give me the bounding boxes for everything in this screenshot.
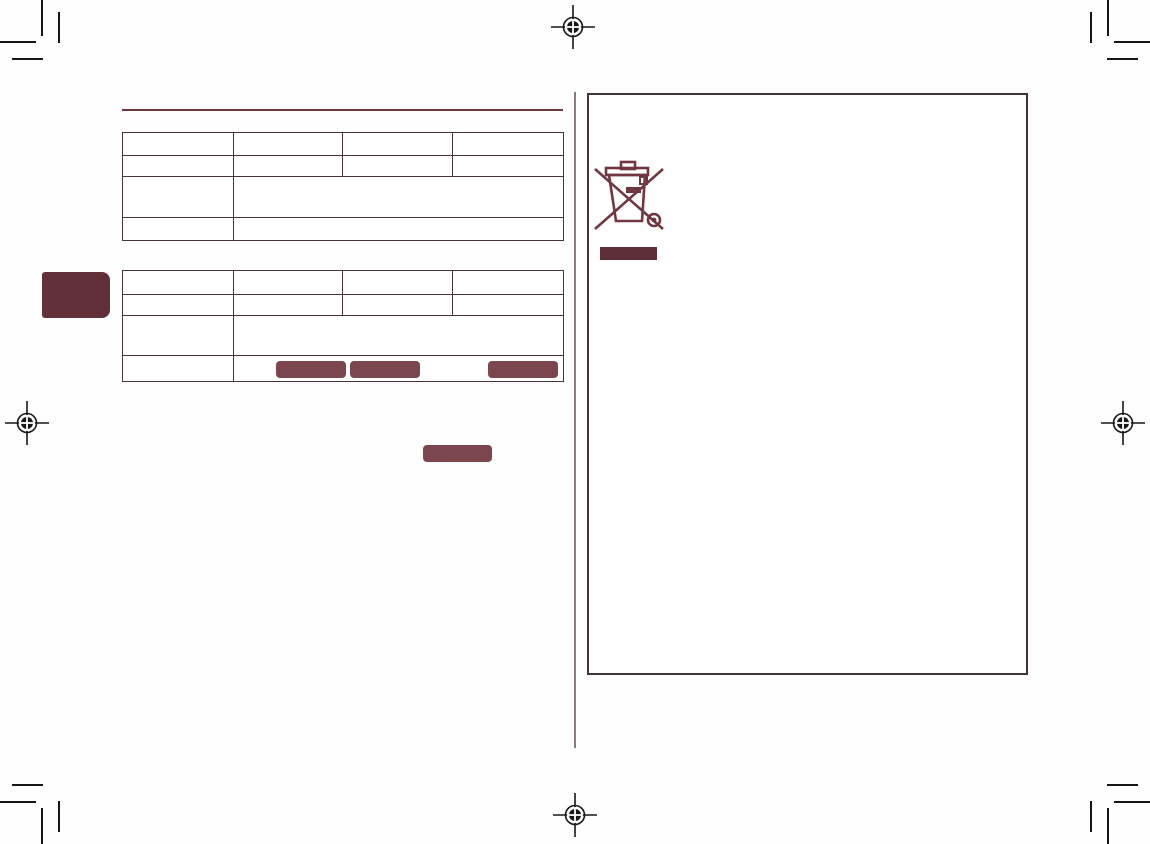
crop-mark — [12, 784, 43, 786]
crop-mark — [58, 801, 60, 832]
weee-crossed-bin-icon — [592, 159, 666, 233]
redacted-text-block — [423, 445, 492, 462]
scanned-page — [0, 0, 1150, 844]
crop-mark — [41, 0, 43, 36]
crop-mark — [1107, 58, 1138, 60]
crop-mark — [41, 808, 43, 844]
table-cell — [123, 295, 234, 316]
table-cell — [123, 271, 234, 295]
table-cell — [123, 218, 234, 241]
center-fold-divider — [574, 92, 576, 748]
table-cell — [453, 295, 564, 316]
table-cell — [123, 316, 234, 356]
redacted-text-block — [350, 361, 420, 378]
registration-mark-icon — [553, 793, 597, 837]
registration-mark-icon — [5, 401, 49, 445]
spec-table-1 — [122, 132, 564, 241]
crop-mark — [1107, 784, 1138, 786]
table-cell — [234, 133, 343, 156]
crop-mark — [58, 12, 60, 43]
crop-mark — [1107, 808, 1109, 844]
table-cell — [123, 356, 234, 382]
crop-mark — [1114, 801, 1150, 803]
redacted-text-block — [276, 361, 346, 378]
table-cell-merged — [234, 356, 564, 382]
table-cell-merged — [234, 177, 564, 218]
table-cell — [234, 271, 343, 295]
table-cell-merged — [234, 316, 564, 356]
table-cell — [234, 156, 343, 177]
table-cell — [123, 177, 234, 218]
table-cell — [343, 295, 453, 316]
spec-table-2 — [122, 270, 564, 382]
table-cell — [453, 133, 564, 156]
redacted-text-block — [488, 361, 558, 378]
crop-mark — [1107, 0, 1109, 36]
crop-mark — [1090, 12, 1092, 43]
page-edge-tab — [42, 272, 110, 318]
table-cell — [343, 133, 453, 156]
table-cell-merged — [234, 218, 564, 241]
table-cell — [343, 271, 453, 295]
section-divider-rule — [122, 109, 563, 111]
crop-mark — [1090, 801, 1092, 832]
table-cell — [123, 156, 234, 177]
registration-mark-icon — [1101, 401, 1145, 445]
crop-mark — [12, 58, 43, 60]
crop-mark — [1114, 41, 1150, 43]
table-cell — [343, 156, 453, 177]
weee-black-bar — [600, 247, 657, 260]
crop-mark — [0, 801, 36, 803]
table-cell — [453, 271, 564, 295]
table-cell — [453, 156, 564, 177]
crop-mark — [0, 41, 36, 43]
table-cell — [123, 133, 234, 156]
registration-mark-icon — [551, 5, 595, 49]
table-cell — [234, 295, 343, 316]
